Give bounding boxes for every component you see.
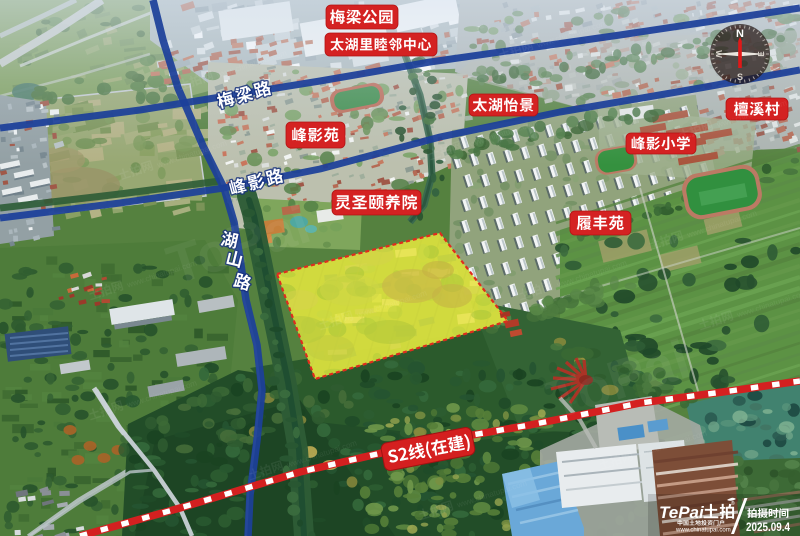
svg-text:®: ® [731, 500, 735, 507]
svg-text:W: W [714, 50, 723, 58]
svg-text:www.chinatupai.com: www.chinatupai.com [675, 528, 731, 534]
svg-text:E: E [757, 51, 766, 57]
svg-text:TePai: TePai [659, 503, 705, 522]
svg-text:2025.09.4: 2025.09.4 [746, 520, 790, 534]
svg-text:S: S [737, 72, 743, 82]
svg-text:N: N [736, 28, 744, 40]
